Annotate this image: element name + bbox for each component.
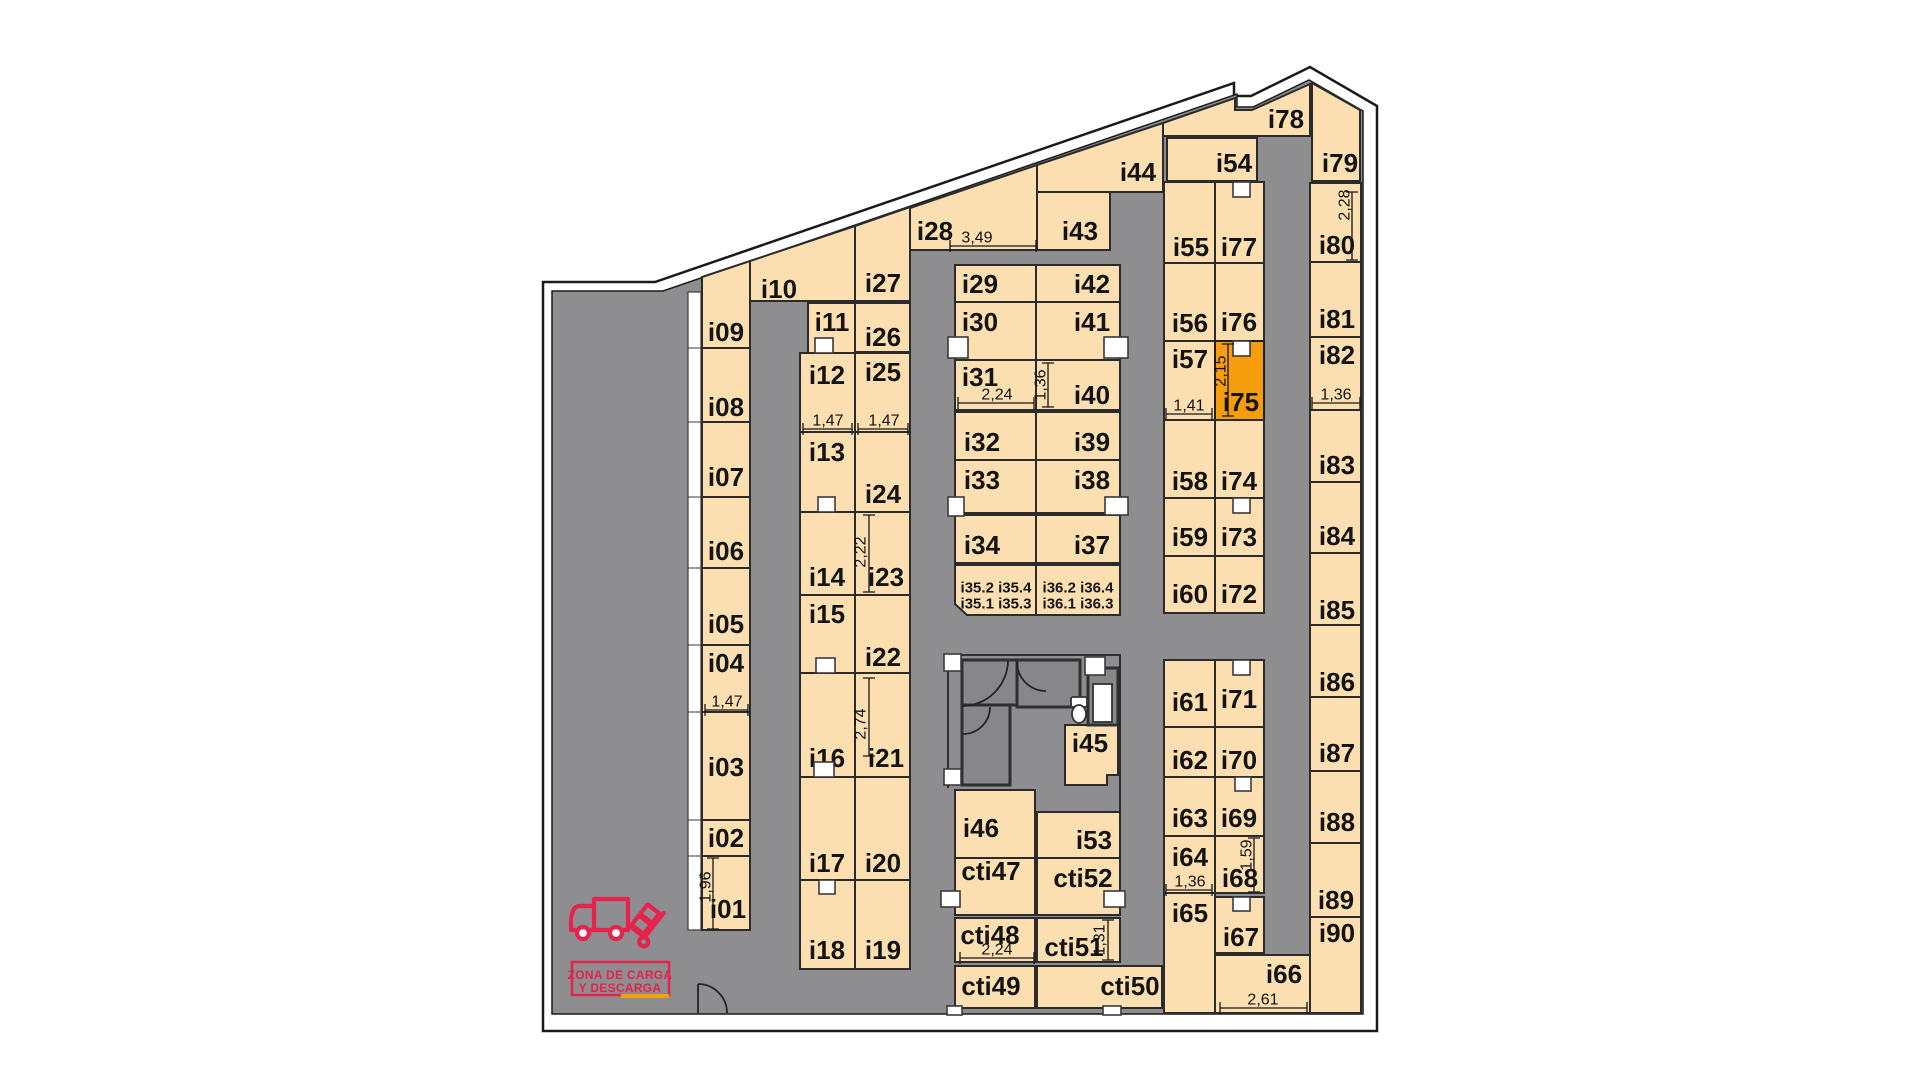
svg-text:i24: i24 [865, 479, 902, 509]
floor-plan: i09 i08 i07 i06 i05 i04 i03 i02 i01 i10 … [0, 0, 1920, 1080]
svg-text:cti47: cti47 [961, 856, 1020, 886]
svg-text:i15: i15 [809, 599, 845, 629]
svg-text:i56: i56 [1172, 308, 1208, 338]
unit-i65[interactable]: i65 [1164, 893, 1215, 1013]
svg-text:2,61: 2,61 [1247, 992, 1278, 1009]
svg-text:i85: i85 [1319, 595, 1355, 625]
svg-text:1,47: 1,47 [711, 694, 742, 711]
unit-i89[interactable]: i89 [1310, 843, 1361, 917]
pillar [1085, 657, 1105, 675]
svg-text:i43: i43 [1062, 216, 1098, 246]
svg-text:i22: i22 [865, 642, 901, 672]
unit-i74[interactable]: i74 [1215, 420, 1264, 498]
unit-i37[interactable]: i37 [1036, 515, 1120, 563]
unit-i24[interactable]: i24 [855, 432, 910, 512]
unit-i08[interactable]: i08 [702, 348, 750, 422]
svg-text:i69: i69 [1221, 803, 1257, 833]
loading-zone-label-line2: Y DESCARGA [579, 981, 662, 995]
unit-i58[interactable]: i58 [1164, 420, 1215, 498]
svg-text:i90: i90 [1319, 918, 1355, 948]
unit-i35-group[interactable]: i35.2 i35.4i35.1 i35.3 [955, 565, 1036, 615]
svg-text:i78: i78 [1268, 104, 1304, 134]
svg-text:i19: i19 [865, 935, 901, 965]
svg-text:i11: i11 [815, 307, 850, 337]
unit-i72[interactable]: i72 [1215, 556, 1264, 613]
unit-i88[interactable]: i88 [1310, 771, 1361, 843]
svg-text:i73: i73 [1221, 522, 1257, 552]
svg-text:i82: i82 [1319, 340, 1355, 370]
svg-text:2,74: 2,74 [853, 708, 870, 739]
unit-i56[interactable]: i56 [1164, 263, 1215, 341]
unit-i03[interactable]: i03 [702, 712, 750, 820]
svg-text:1,36: 1,36 [1033, 369, 1050, 400]
unit-i42[interactable]: i42 [1036, 265, 1120, 302]
svg-text:i39: i39 [1074, 427, 1110, 457]
svg-text:i07: i07 [708, 462, 744, 492]
svg-text:i70: i70 [1221, 745, 1257, 775]
svg-text:i21: i21 [868, 743, 904, 773]
svg-text:i33: i33 [964, 465, 1000, 495]
svg-text:i12: i12 [809, 360, 845, 390]
svg-text:i36.2 i36.4: i36.2 i36.4 [1043, 580, 1115, 597]
svg-text:i72: i72 [1221, 579, 1257, 609]
svg-text:i79: i79 [1322, 148, 1358, 178]
svg-text:i87: i87 [1319, 738, 1355, 768]
unit-i34[interactable]: i34 [955, 515, 1036, 563]
svg-text:i23: i23 [868, 562, 904, 592]
svg-text:i17: i17 [809, 848, 845, 878]
svg-text:i04: i04 [708, 648, 745, 678]
svg-text:i60: i60 [1172, 579, 1208, 609]
svg-text:i40: i40 [1074, 380, 1110, 410]
svg-text:i02: i02 [708, 823, 744, 853]
unit-i36-group[interactable]: i36.2 i36.4i36.1 i36.3 [1036, 565, 1120, 615]
svg-text:i61: i61 [1172, 687, 1208, 717]
svg-text:1,47: 1,47 [812, 413, 843, 430]
unit-i76[interactable]: i76 [1215, 263, 1264, 341]
svg-text:i09: i09 [708, 317, 744, 347]
pillar [944, 654, 961, 671]
svg-text:i74: i74 [1221, 466, 1258, 496]
unit-i07[interactable]: i07 [702, 422, 750, 497]
svg-text:i55: i55 [1173, 232, 1209, 262]
unit-i54[interactable]: i54 [1167, 138, 1257, 181]
svg-text:i13: i13 [809, 437, 845, 467]
svg-text:i36.1 i36.3: i36.1 i36.3 [1043, 596, 1114, 613]
svg-text:i08: i08 [708, 392, 744, 422]
svg-text:i05: i05 [708, 609, 744, 639]
svg-text:i32: i32 [964, 427, 1000, 457]
svg-text:2,28: 2,28 [1337, 189, 1354, 220]
svg-text:i35.2 i35.4: i35.2 i35.4 [961, 580, 1033, 597]
svg-text:i64: i64 [1172, 842, 1209, 872]
svg-text:i83: i83 [1319, 450, 1355, 480]
svg-text:1,59: 1,59 [1239, 839, 1256, 870]
svg-text:1,47: 1,47 [868, 413, 899, 430]
unit-i43[interactable]: i43 [1037, 192, 1110, 250]
svg-text:i41: i41 [1074, 307, 1110, 337]
unit-i45[interactable]: i45 [1065, 725, 1118, 785]
svg-text:i37: i37 [1074, 530, 1110, 560]
svg-text:i25: i25 [865, 357, 901, 387]
unit-i02[interactable]: i02 [702, 820, 750, 856]
svg-text:i34: i34 [964, 530, 1001, 560]
toilet-bowl-icon [1072, 705, 1086, 723]
unit-i90[interactable]: i90 [1310, 917, 1361, 1013]
svg-text:i30: i30 [962, 307, 998, 337]
svg-text:i03: i03 [708, 752, 744, 782]
unit-i87[interactable]: i87 [1310, 697, 1361, 771]
svg-text:i10: i10 [761, 274, 797, 304]
svg-text:i57: i57 [1172, 344, 1208, 374]
unit-i59[interactable]: i59 [1164, 498, 1215, 556]
svg-text:1,36: 1,36 [1174, 874, 1205, 891]
unit-i70[interactable]: i70 [1215, 727, 1264, 777]
svg-text:i01: i01 [710, 894, 746, 924]
unit-i05[interactable]: i05 [702, 568, 750, 645]
svg-text:1,96: 1,96 [698, 871, 715, 902]
svg-text:i88: i88 [1319, 807, 1355, 837]
svg-text:i46: i46 [963, 813, 999, 843]
unit-i46[interactable]: i46 [955, 790, 1035, 858]
unit-i83[interactable]: i83 [1310, 410, 1361, 482]
svg-text:i53: i53 [1076, 825, 1112, 855]
svg-text:i86: i86 [1319, 667, 1355, 697]
unit-cti50[interactable]: cti50 [1037, 966, 1162, 1008]
svg-text:i35.1 i35.3: i35.1 i35.3 [961, 596, 1032, 613]
unit-i61[interactable]: i61 [1164, 660, 1215, 727]
unit-i60[interactable]: i60 [1164, 556, 1215, 613]
svg-text:i62: i62 [1172, 745, 1208, 775]
svg-text:i58: i58 [1172, 466, 1208, 496]
unit-i63[interactable]: i63 [1164, 777, 1215, 836]
pillar [1104, 891, 1125, 907]
unit-i29[interactable]: i29 [955, 265, 1036, 302]
svg-text:i44: i44 [1120, 157, 1157, 187]
svg-text:i06: i06 [708, 536, 744, 566]
svg-text:i45: i45 [1072, 728, 1108, 758]
unit-i09[interactable]: i09 [702, 261, 750, 348]
unit-i84[interactable]: i84 [1310, 482, 1361, 553]
svg-text:i80: i80 [1319, 230, 1355, 260]
unit-i86[interactable]: i86 [1310, 625, 1361, 697]
svg-text:2,24: 2,24 [981, 387, 1012, 404]
svg-text:i81: i81 [1319, 304, 1355, 334]
svg-text:2,15: 2,15 [1213, 355, 1230, 386]
svg-text:i59: i59 [1172, 522, 1208, 552]
unit-i33[interactable]: i33 [955, 460, 1036, 513]
svg-text:i27: i27 [865, 268, 901, 298]
interior-wall [688, 292, 701, 930]
svg-text:i28: i28 [917, 216, 953, 246]
svg-text:i20: i20 [865, 848, 901, 878]
svg-text:i42: i42 [1074, 269, 1110, 299]
wc-room [962, 705, 1010, 785]
unit-i19[interactable]: i19 [855, 880, 910, 969]
svg-text:i89: i89 [1318, 885, 1354, 915]
svg-text:cti52: cti52 [1053, 863, 1112, 893]
unit-cti47[interactable]: cti47 [955, 856, 1035, 915]
pillar [944, 769, 961, 785]
svg-text:i84: i84 [1319, 521, 1356, 551]
svg-text:i63: i63 [1172, 803, 1208, 833]
svg-text:i38: i38 [1074, 465, 1110, 495]
unit-i85[interactable]: i85 [1310, 553, 1361, 625]
unit-i17[interactable]: i17 [800, 777, 855, 880]
svg-text:i66: i66 [1266, 959, 1302, 989]
pillar [941, 891, 960, 907]
svg-text:i26: i26 [865, 322, 901, 352]
svg-text:1,41: 1,41 [1173, 398, 1204, 415]
unit-i39[interactable]: i39 [1036, 412, 1120, 460]
vestibule-room [962, 660, 1017, 705]
svg-text:1,36: 1,36 [1320, 387, 1351, 404]
svg-text:2,24: 2,24 [981, 942, 1012, 959]
unit-i26[interactable]: i26 [855, 303, 910, 352]
svg-text:2,22: 2,22 [853, 536, 870, 567]
svg-text:i65: i65 [1172, 898, 1208, 928]
unit-i32[interactable]: i32 [955, 412, 1036, 460]
svg-text:i71: i71 [1221, 684, 1257, 714]
unit-i22[interactable]: i22 [855, 595, 910, 673]
svg-text:i29: i29 [962, 269, 998, 299]
loading-zone-label-line1: ZONA DE CARGA [568, 968, 673, 982]
svg-text:3,49: 3,49 [961, 230, 992, 247]
unit-i14[interactable]: i14 [800, 512, 855, 595]
elevator-car-icon [1093, 684, 1112, 722]
unit-i62[interactable]: i62 [1164, 727, 1215, 777]
unit-i55[interactable]: i55 [1164, 182, 1215, 263]
unit-i81[interactable]: i81 [1310, 262, 1361, 337]
unit-i06[interactable]: i06 [702, 497, 750, 568]
svg-text:i77: i77 [1221, 232, 1257, 262]
svg-text:i54: i54 [1216, 148, 1253, 178]
svg-text:1,31: 1,31 [1092, 924, 1109, 955]
svg-text:i14: i14 [809, 562, 846, 592]
svg-text:cti49: cti49 [961, 971, 1020, 1001]
unit-i20[interactable]: i20 [855, 777, 910, 880]
unit-cti49[interactable]: cti49 [955, 966, 1035, 1008]
svg-text:i67: i67 [1223, 922, 1259, 952]
svg-text:cti50: cti50 [1100, 971, 1159, 1001]
svg-text:i18: i18 [809, 935, 845, 965]
unit-i53[interactable]: i53 [1037, 812, 1120, 858]
svg-text:i76: i76 [1221, 307, 1257, 337]
